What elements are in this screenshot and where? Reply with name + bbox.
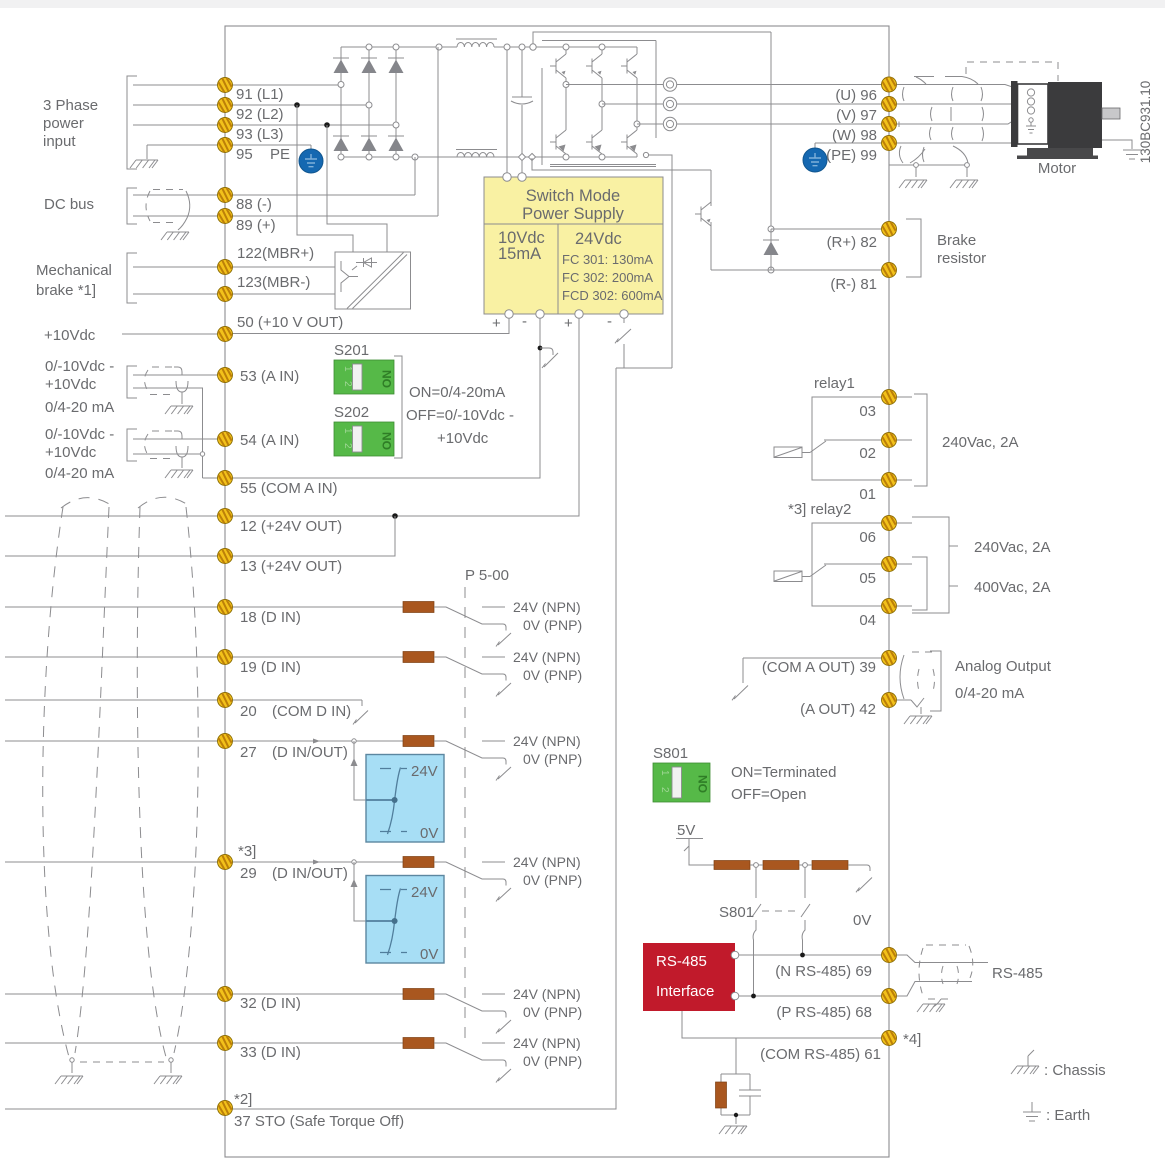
svg-text:power: power xyxy=(43,115,84,132)
svg-text:05: 05 xyxy=(859,570,876,587)
svg-text:(U) 96: (U) 96 xyxy=(835,87,877,104)
svg-text:ON=0/4-20mA: ON=0/4-20mA xyxy=(409,384,505,401)
svg-text:Mechanical: Mechanical xyxy=(36,262,112,279)
svg-text:(D IN/OUT): (D IN/OUT) xyxy=(272,865,348,882)
svg-text:0/4-20 mA: 0/4-20 mA xyxy=(45,465,114,482)
svg-text:*3] relay2: *3] relay2 xyxy=(788,501,851,518)
svg-text:89 (+): 89 (+) xyxy=(236,217,276,234)
svg-text:(W) 98: (W) 98 xyxy=(832,127,877,144)
svg-text:(N RS-485) 69: (N RS-485) 69 xyxy=(775,963,872,980)
svg-text:24V: 24V xyxy=(411,763,438,780)
svg-text:0/4-20 mA: 0/4-20 mA xyxy=(45,399,114,416)
svg-text:S801: S801 xyxy=(719,904,754,921)
svg-text:0V: 0V xyxy=(853,912,871,929)
svg-text:(COM D IN): (COM D IN) xyxy=(272,703,351,720)
svg-text:130BC931.10: 130BC931.10 xyxy=(1138,81,1153,164)
svg-text:+10Vdc: +10Vdc xyxy=(44,327,96,344)
svg-text:-: - xyxy=(607,313,612,330)
svg-text:91 (L1): 91 (L1) xyxy=(236,86,284,103)
svg-text:relay1: relay1 xyxy=(814,375,855,392)
svg-text:(R-) 81: (R-) 81 xyxy=(830,276,877,293)
svg-text:0V: 0V xyxy=(420,825,438,842)
svg-text:S801: S801 xyxy=(653,745,688,762)
svg-text:RS-485: RS-485 xyxy=(992,965,1043,982)
svg-text:88 (-): 88 (-) xyxy=(236,196,272,213)
svg-text:37 STO (Safe Torque Off): 37 STO (Safe Torque Off) xyxy=(234,1113,404,1130)
svg-text:32 (D IN): 32 (D IN) xyxy=(240,995,301,1012)
svg-text:33 (D IN): 33 (D IN) xyxy=(240,1044,301,1061)
svg-text:FC 302: 200mA: FC 302: 200mA xyxy=(562,270,653,285)
svg-text:92 (L2): 92 (L2) xyxy=(236,106,284,123)
svg-text:02: 02 xyxy=(859,445,876,462)
svg-text:(COM A OUT) 39: (COM A OUT) 39 xyxy=(762,659,876,676)
svg-text:+: + xyxy=(564,315,573,332)
svg-text:01: 01 xyxy=(859,486,876,503)
svg-text:(R+) 82: (R+) 82 xyxy=(827,234,877,251)
svg-text:ON=Terminated: ON=Terminated xyxy=(731,764,836,781)
svg-text:29: 29 xyxy=(240,865,257,882)
svg-text:03: 03 xyxy=(859,403,876,420)
svg-text:OFF=0/-10Vdc -: OFF=0/-10Vdc - xyxy=(406,407,514,424)
svg-text:123(MBR-): 123(MBR-) xyxy=(237,274,310,291)
svg-text:0/-10Vdc -: 0/-10Vdc - xyxy=(45,358,114,375)
svg-text:2: 2 xyxy=(342,443,353,449)
svg-text:FC 301: 130mA: FC 301: 130mA xyxy=(562,252,653,267)
svg-text:5V: 5V xyxy=(677,822,695,839)
svg-text:Power Supply: Power Supply xyxy=(522,205,625,223)
svg-text:DC bus: DC bus xyxy=(44,196,94,213)
svg-text:Interface: Interface xyxy=(656,983,714,1000)
svg-text:*2]: *2] xyxy=(234,1091,252,1108)
svg-text:(P RS-485) 68: (P RS-485) 68 xyxy=(776,1004,872,1021)
svg-text:93 (L3): 93 (L3) xyxy=(236,126,284,143)
svg-text:0/-10Vdc -: 0/-10Vdc - xyxy=(45,426,114,443)
svg-text:*4]: *4] xyxy=(903,1031,921,1048)
svg-text:50 (+10 V OUT): 50 (+10 V OUT) xyxy=(237,314,343,331)
svg-text:3 Phase: 3 Phase xyxy=(43,97,98,114)
svg-text:240Vac, 2A: 240Vac, 2A xyxy=(942,434,1018,451)
svg-text:P 5-00: P 5-00 xyxy=(465,567,509,584)
svg-text:Switch Mode: Switch Mode xyxy=(526,187,620,205)
svg-text:input: input xyxy=(43,133,76,150)
svg-text:+10Vdc: +10Vdc xyxy=(45,444,97,461)
svg-text:2: 2 xyxy=(659,787,670,793)
svg-text:(COM RS-485) 61: (COM RS-485) 61 xyxy=(760,1046,881,1063)
svg-text:122(MBR+): 122(MBR+) xyxy=(237,245,314,262)
svg-text:53 (A IN): 53 (A IN) xyxy=(240,368,299,385)
svg-text:(V) 97: (V) 97 xyxy=(836,107,877,124)
svg-text:ON: ON xyxy=(380,432,394,450)
svg-text:RS-485: RS-485 xyxy=(656,953,707,970)
svg-text:: Earth: : Earth xyxy=(1046,1107,1090,1124)
svg-text:18 (D IN): 18 (D IN) xyxy=(240,609,301,626)
svg-text:ON: ON xyxy=(696,775,710,793)
svg-text:55 (COM A IN): 55 (COM A IN) xyxy=(240,480,338,497)
svg-text:S201: S201 xyxy=(334,342,369,359)
svg-text:(D IN/OUT): (D IN/OUT) xyxy=(272,744,348,761)
svg-text:2: 2 xyxy=(342,381,353,387)
svg-text:20: 20 xyxy=(240,703,257,720)
svg-text:19 (D IN): 19 (D IN) xyxy=(240,659,301,676)
svg-text:: Chassis: : Chassis xyxy=(1044,1062,1106,1079)
svg-text:ON: ON xyxy=(380,370,394,388)
svg-text:Motor: Motor xyxy=(1038,160,1076,177)
svg-text:24Vdc: 24Vdc xyxy=(575,230,622,248)
svg-text:13 (+24V OUT): 13 (+24V OUT) xyxy=(240,558,342,575)
svg-text:1: 1 xyxy=(342,428,353,434)
svg-text:15mA: 15mA xyxy=(498,245,541,263)
svg-text:PE: PE xyxy=(270,146,290,163)
svg-text:brake *1]: brake *1] xyxy=(36,282,96,299)
svg-text:S202: S202 xyxy=(334,404,369,421)
svg-text:04: 04 xyxy=(859,612,876,629)
svg-text:06: 06 xyxy=(859,529,876,546)
svg-text:95: 95 xyxy=(236,146,253,163)
svg-text:+: + xyxy=(492,315,501,332)
svg-text:*3]: *3] xyxy=(238,843,256,860)
svg-text:(PE) 99: (PE) 99 xyxy=(826,147,877,164)
svg-text:Brake: Brake xyxy=(937,232,976,249)
svg-text:12 (+24V OUT): 12 (+24V OUT) xyxy=(240,518,342,535)
svg-text:+10Vdc: +10Vdc xyxy=(45,376,97,393)
svg-text:1: 1 xyxy=(342,366,353,372)
svg-text:Analog Output: Analog Output xyxy=(955,658,1052,675)
svg-text:0V: 0V xyxy=(420,946,438,963)
svg-text:+10Vdc: +10Vdc xyxy=(437,430,489,447)
svg-text:OFF=Open: OFF=Open xyxy=(731,786,806,803)
svg-text:400Vac, 2A: 400Vac, 2A xyxy=(974,579,1050,596)
svg-text:24V: 24V xyxy=(411,884,438,901)
svg-text:54 (A IN): 54 (A IN) xyxy=(240,432,299,449)
svg-text:-: - xyxy=(522,313,527,330)
svg-text:resistor: resistor xyxy=(937,250,986,267)
svg-text:27: 27 xyxy=(240,744,257,761)
svg-text:0/4-20 mA: 0/4-20 mA xyxy=(955,685,1024,702)
svg-text:FCD 302: 600mA: FCD 302: 600mA xyxy=(562,288,663,303)
svg-text:(A OUT) 42: (A OUT) 42 xyxy=(800,701,876,718)
svg-text:240Vac, 2A: 240Vac, 2A xyxy=(974,539,1050,556)
svg-text:1: 1 xyxy=(659,770,670,776)
